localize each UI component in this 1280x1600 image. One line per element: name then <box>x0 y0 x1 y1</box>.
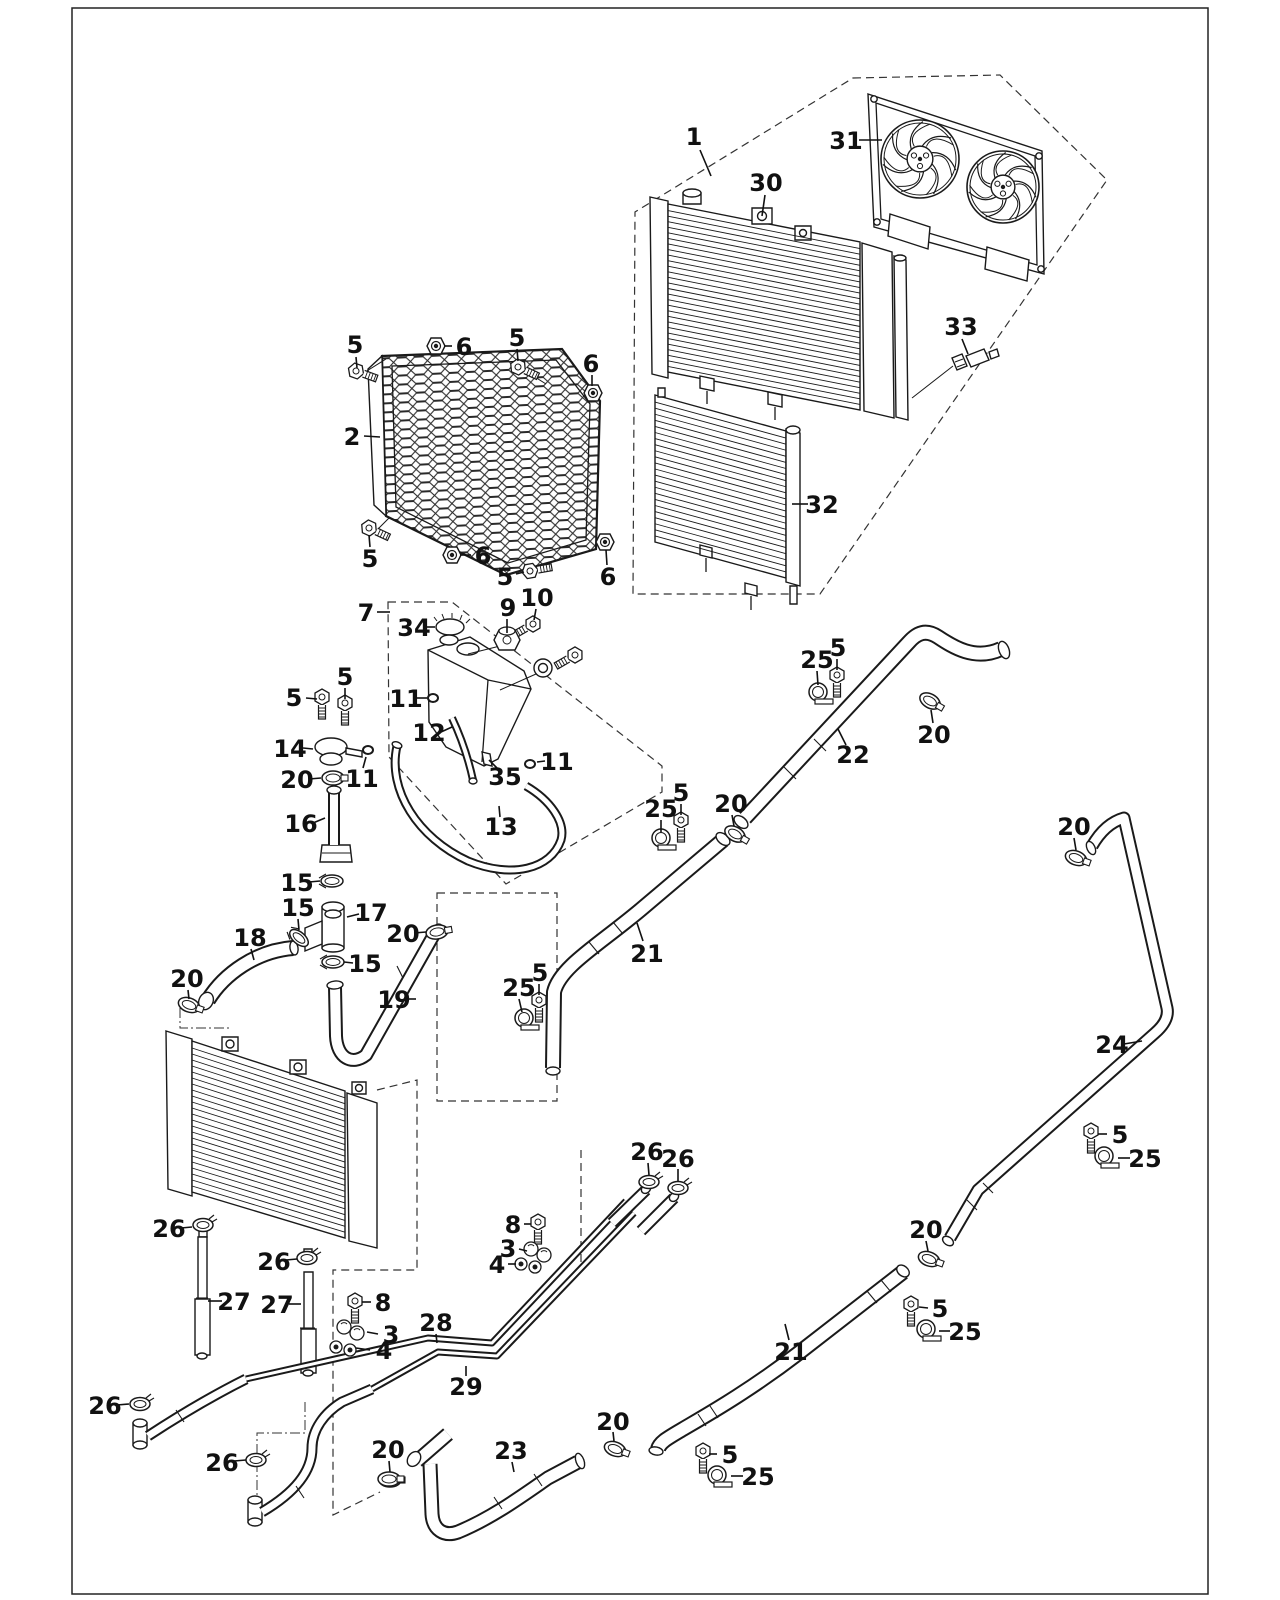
o-ring-icon <box>525 760 535 768</box>
callout-28: 28 <box>419 1309 452 1337</box>
callout-7: 7 <box>358 599 375 627</box>
callout-9: 9 <box>500 594 517 622</box>
callout-5: 5 <box>286 684 303 712</box>
callout-35: 35 <box>488 763 521 791</box>
callout-26: 26 <box>630 1138 663 1166</box>
callout-5: 5 <box>673 779 690 807</box>
diagram-page: 1303133322565656567349101112351113115514… <box>0 0 1280 1600</box>
callout-32: 32 <box>805 491 838 519</box>
callout-25: 25 <box>502 974 535 1002</box>
callout-26: 26 <box>88 1392 121 1420</box>
callout-15: 15 <box>281 894 314 922</box>
callout-18: 18 <box>233 924 266 952</box>
tank-filler-neck <box>457 643 479 655</box>
callout-4: 4 <box>376 1337 393 1365</box>
callout-11: 11 <box>389 685 422 713</box>
callout-20: 20 <box>386 920 419 948</box>
hose-opening <box>327 786 341 794</box>
callout-16: 16 <box>284 810 317 838</box>
callout-31: 31 <box>829 127 862 155</box>
o-ring-icon <box>363 746 373 754</box>
hose-opening <box>197 1353 207 1359</box>
leader-line <box>306 698 317 699</box>
band-clamp-icon <box>320 955 344 969</box>
callout-20: 20 <box>917 721 950 749</box>
callout-20: 20 <box>596 1408 629 1436</box>
page-background <box>0 0 1280 1600</box>
callout-15: 15 <box>348 950 381 978</box>
callout-22: 22 <box>836 741 869 769</box>
callout-6: 6 <box>456 333 473 361</box>
callout-6: 6 <box>600 563 617 591</box>
callout-21: 21 <box>774 1338 807 1366</box>
callout-5: 5 <box>347 331 364 359</box>
nut-icon <box>427 338 445 354</box>
callout-25: 25 <box>741 1463 774 1491</box>
callout-5: 5 <box>337 663 354 691</box>
pipe-16-flange <box>320 845 352 862</box>
cooling-fan-right <box>967 151 1039 223</box>
callout-20: 20 <box>280 766 313 794</box>
callout-20: 20 <box>714 790 747 818</box>
callout-8: 8 <box>375 1289 392 1317</box>
leader-line <box>364 436 380 437</box>
callout-20: 20 <box>371 1436 404 1464</box>
callout-27: 27 <box>260 1291 293 1319</box>
parts-diagram-canvas: 1303133322565656567349101112351113115514… <box>0 0 1280 1600</box>
callout-33: 33 <box>944 313 977 341</box>
callout-30: 30 <box>749 169 782 197</box>
callout-20: 20 <box>1057 813 1090 841</box>
callout-5: 5 <box>722 1441 739 1469</box>
band-clamp-icon <box>319 874 343 888</box>
callout-10: 10 <box>520 584 553 612</box>
hose-opening <box>469 778 477 784</box>
reservoir-cap <box>436 619 464 635</box>
callout-26: 26 <box>257 1248 290 1276</box>
callout-20: 20 <box>170 965 203 993</box>
hose-opening <box>303 1370 313 1376</box>
callout-5: 5 <box>509 324 526 352</box>
callout-27: 27 <box>217 1288 250 1316</box>
o-ring-icon <box>428 694 438 702</box>
callout-15: 15 <box>280 869 313 897</box>
callout-34: 34 <box>397 614 430 642</box>
callout-17: 17 <box>354 899 387 927</box>
callout-5: 5 <box>932 1295 949 1323</box>
callout-5: 5 <box>497 563 514 591</box>
callout-14: 14 <box>273 735 306 763</box>
callout-26: 26 <box>205 1449 238 1477</box>
callout-1: 1 <box>686 123 703 151</box>
nut-icon <box>443 547 461 563</box>
callout-25: 25 <box>1128 1145 1161 1173</box>
callout-20: 20 <box>909 1216 942 1244</box>
callout-29: 29 <box>449 1373 482 1401</box>
callout-13: 13 <box>484 813 517 841</box>
callout-26: 26 <box>152 1215 185 1243</box>
nut-icon <box>596 534 614 550</box>
callout-5: 5 <box>1112 1121 1129 1149</box>
callout-11: 11 <box>345 765 378 793</box>
callout-12: 12 <box>412 719 445 747</box>
callout-26: 26 <box>661 1145 694 1173</box>
callout-5: 5 <box>362 545 379 573</box>
callout-2: 2 <box>344 423 361 451</box>
hose-opening <box>546 1067 560 1075</box>
leader-line <box>919 1307 928 1308</box>
callout-19: 19 <box>377 986 410 1014</box>
callout-24: 24 <box>1095 1031 1128 1059</box>
cooling-fan-left <box>881 120 959 198</box>
callout-6: 6 <box>475 542 492 570</box>
callout-5: 5 <box>830 634 847 662</box>
callout-6: 6 <box>583 350 600 378</box>
callout-23: 23 <box>494 1437 527 1465</box>
callout-25: 25 <box>948 1318 981 1346</box>
callout-21: 21 <box>630 940 663 968</box>
callout-4: 4 <box>489 1251 506 1279</box>
callout-11: 11 <box>540 748 573 776</box>
nut-icon <box>584 385 602 401</box>
